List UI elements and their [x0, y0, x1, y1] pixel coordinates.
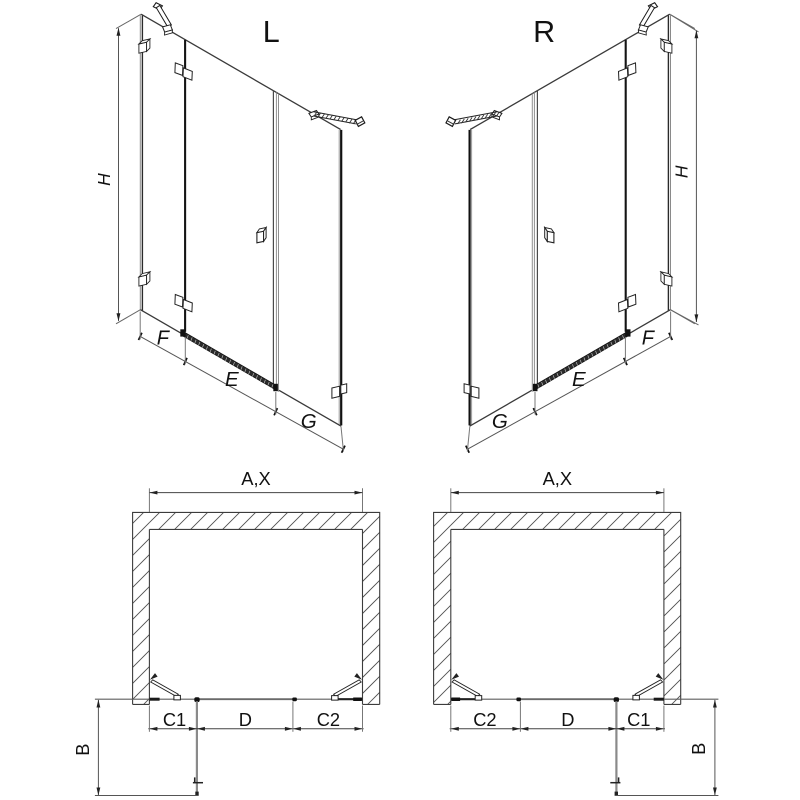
svg-text:B: B	[72, 743, 93, 755]
svg-text:D: D	[239, 709, 252, 730]
svg-text:C2: C2	[317, 709, 340, 730]
svg-text:A,X: A,X	[543, 468, 572, 489]
svg-text:D: D	[561, 709, 574, 730]
svg-text:L: L	[263, 15, 280, 49]
svg-text:H: H	[672, 165, 692, 178]
svg-text:F: F	[642, 328, 656, 350]
svg-text:C1: C1	[627, 709, 650, 730]
svg-text:E: E	[572, 368, 586, 391]
svg-text:R: R	[533, 15, 555, 49]
svg-text:H: H	[94, 173, 114, 186]
svg-text:B: B	[688, 743, 709, 755]
svg-text:G: G	[301, 410, 317, 433]
svg-text:F: F	[157, 328, 171, 350]
svg-text:A,X: A,X	[241, 468, 270, 489]
svg-text:C2: C2	[473, 709, 496, 730]
svg-text:G: G	[492, 410, 508, 433]
svg-text:C1: C1	[163, 709, 186, 730]
svg-text:E: E	[225, 368, 239, 391]
